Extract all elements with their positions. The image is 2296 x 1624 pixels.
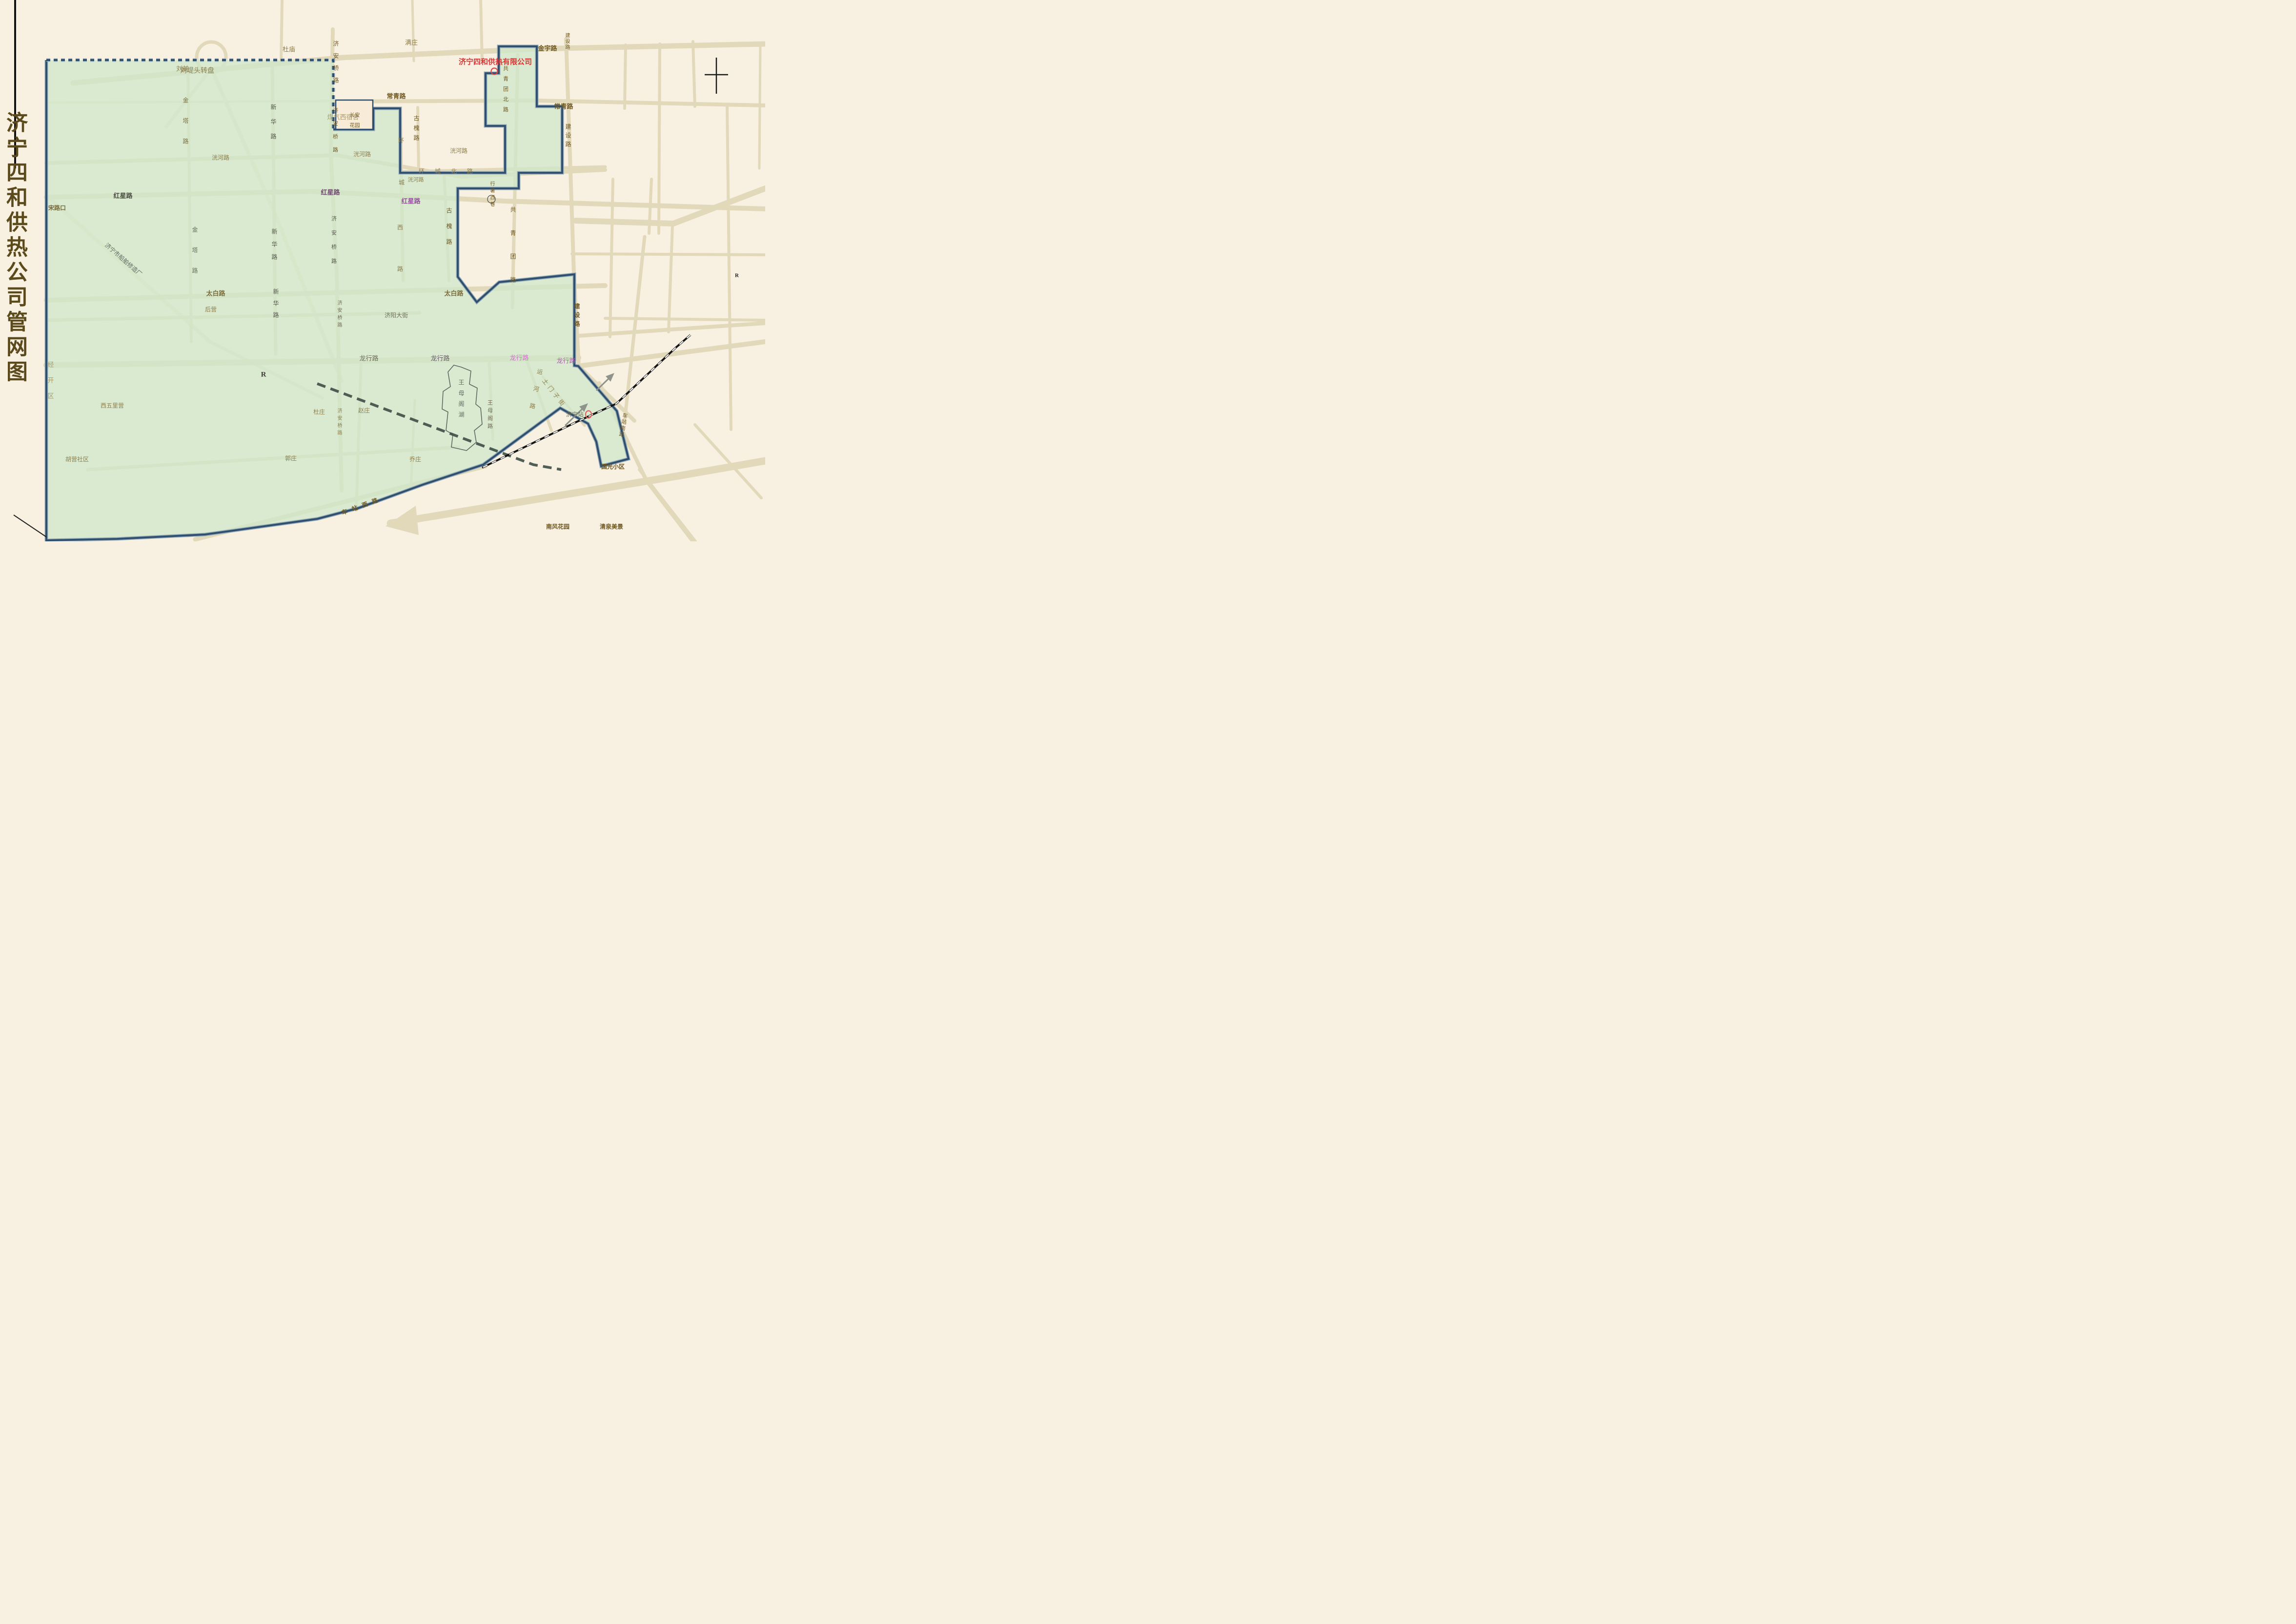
label-hongxing-road-w: 红星路 [113,193,132,199]
label-jinta-road-s: 金塔路 [192,226,198,288]
label-jiananqiao-road-2: 济安桥路 [332,107,338,160]
label-taibai-road-e: 太白路 [444,290,463,297]
label-liuqian: 刘前 [176,66,189,72]
label-huanchengxi-huan: 环 [398,138,404,144]
label-wangmuge-road: 王母阁路 [487,400,492,431]
label-jianshe-road-m: 建设路 [565,123,571,150]
label-guanghe-road-e: 洸河路 [450,148,467,154]
label-xingshu-xixiang: 行署西巷 [489,181,494,208]
label-jianshe-road-s: 建设路 [574,303,580,329]
heating-network-map: 济宁四和供热公司管网图 刘堤头转盘杜庙满庄金宇路济宁四和供热有限公司刘前济安桥路… [0,0,765,541]
label-taibai-road-w: 太白路 [206,290,225,297]
label-guhuai-road-n: 古槐路 [413,115,419,144]
label-longxing-road-4: 龙行路 [556,358,575,364]
label-huanchengxi-cheng: 城 [399,180,405,185]
label-huayuan: 花园 [350,123,360,129]
label-guhuai-road-s: 古槐路 [446,207,452,254]
label-jiananqiao-road-3: 济安桥路 [331,216,336,272]
label-longxing-road-1: 龙行路 [359,355,378,362]
label-xinhua-road-n: 新华路 [270,104,276,148]
label-longxing-road-2: 龙行路 [430,355,449,362]
label-xinhua-road-s: 新华路 [273,288,279,324]
label-hongxing-road-e: 红星路 [401,198,420,205]
label-nanfeng-huayuan: 南风花园 [546,524,569,530]
label-xinhua-road-m: 新华路 [271,228,277,267]
label-jiningzhan: 济宁站 [566,411,584,417]
label-huying-shequ: 胡营社区 [65,456,89,462]
label-xiwuliying: 西五里营 [101,403,124,409]
label-guanghe-road-m: 洸河路 [353,151,371,157]
label-changqing-road-e: 常青路 [554,103,573,110]
label-songlukou: 宋路口 [48,205,66,211]
label-jinta-road-n: 金塔路 [183,97,188,159]
label-qiaozhuang: 乔庄 [409,456,421,462]
label-guoguang-xiaoqu: 国光小区 [601,464,625,470]
label-gongqingtuanbei-road: 共青团北路 [503,66,508,117]
label-guanghe-road-w: 洸河路 [212,155,229,161]
label-r-mark-1: R [261,371,266,379]
label-huanchengxi-lu: 路 [397,266,403,272]
label-jinyu-road: 金宇路 [538,45,557,52]
label-jiananqiao-road-1: 济安桥路 [333,41,339,89]
label-company-name: 济宁四和供热有限公司 [459,59,532,66]
label-qingquan-meijing: 清泉美景 [600,524,623,530]
label-hongxing-road-m: 红星路 [321,189,340,196]
label-houying: 后营 [205,307,217,312]
label-zhaozhuang: 赵庄 [358,408,370,413]
label-jianshe-road-n: 建设路 [564,33,569,50]
label-huanchengbei-road: 环城北路 [419,168,483,174]
label-guanghe-road-c: 洸河路 [408,178,424,183]
label-jingkaiqu: 经开区 [47,361,54,408]
label-jiyang-dajie: 济阳大街 [385,312,408,318]
label-gongqingtuan-road: 共青团路 [510,206,516,300]
label-huanchengxi-xi: 西 [397,225,403,230]
label-dumiao: 杜庙 [283,46,295,53]
label-jiananqiao-road-5: 济安桥路 [336,408,341,437]
label-jiananqiao-road-4: 济安桥路 [336,300,341,329]
label-r-mark-2: R [735,273,739,279]
label-guozhuang: 郭庄 [285,455,297,461]
label-changan: 长安 [350,113,360,119]
map-title: 济宁四和供热公司管网图 [4,111,25,385]
label-longxing-road-3: 龙行路 [509,355,528,361]
label-manzhuang: 满庄 [405,40,418,46]
label-changqing-road-w: 常青路 [386,93,406,100]
map-canvas [0,0,765,541]
label-duzhuang: 杜庄 [313,409,325,415]
label-wangmuge-lake: 王母阁湖 [458,379,464,422]
